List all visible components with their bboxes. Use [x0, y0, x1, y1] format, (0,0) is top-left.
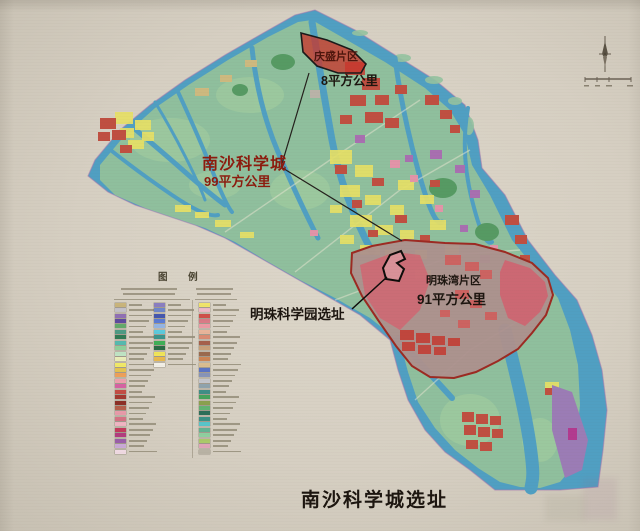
- legend-swatch: [199, 379, 210, 383]
- legend-swatch: [115, 422, 126, 426]
- legend-swatch: [199, 433, 210, 437]
- legend-swatch: [154, 357, 165, 361]
- legend-swatch: [115, 450, 126, 454]
- legend-label-bar: [129, 429, 153, 431]
- legend-label-bar: [213, 304, 226, 306]
- legend-label-bar: [213, 380, 232, 382]
- qingsheng-district-label: 庆盛片区: [314, 48, 358, 64]
- legend-label-bar: [129, 434, 150, 436]
- legend-label-bar: [213, 309, 239, 311]
- legend-swatch: [154, 341, 165, 345]
- legend-label-bar: [213, 364, 241, 366]
- legend-label-bar: [213, 429, 237, 431]
- legend-swatch: [199, 319, 210, 323]
- scale-bar: [583, 76, 633, 88]
- legend-swatch: [199, 341, 210, 345]
- legend-swatch: [199, 330, 210, 334]
- legend-divider: [114, 299, 190, 300]
- legend-swatch: [115, 303, 126, 307]
- legend-swatch: [115, 406, 126, 410]
- legend-swatch: [199, 314, 210, 318]
- legend-swatch: [154, 314, 165, 318]
- legend-label-bar: [129, 402, 152, 404]
- legend-label-bar: [213, 320, 233, 322]
- legend-swatch: [199, 303, 210, 307]
- mingzhu-bay-label: 明珠湾片区: [426, 272, 481, 288]
- legend-label-bar: [129, 336, 156, 338]
- legend-label-bar: [213, 336, 240, 338]
- legend-label-bar: [213, 369, 238, 371]
- legend-label-bar: [168, 315, 191, 317]
- legend-label-bar: [129, 309, 155, 311]
- legend-swatch: [199, 368, 210, 372]
- legend-label-bar: [168, 364, 196, 366]
- legend-label-bar: [129, 326, 146, 328]
- legend-swatch: [199, 384, 210, 388]
- legend-row: [199, 449, 241, 454]
- legend-label-bar: [129, 342, 153, 344]
- legend-label-bar: [213, 385, 229, 387]
- legend-label-bar: [129, 369, 154, 371]
- map-caption: 南沙科学城选址: [301, 485, 448, 512]
- legend-label-bar: [129, 380, 148, 382]
- legend-swatch: [115, 401, 126, 405]
- legend-label-bar: [129, 358, 144, 360]
- legend-label-bar: [168, 304, 181, 306]
- legend-label-bar: [168, 331, 182, 333]
- legend-label-bar: [168, 320, 188, 322]
- legend-swatch: [115, 390, 126, 394]
- magenta-patch: [568, 428, 577, 440]
- legend-label-bar: [213, 315, 236, 317]
- legend-swatch: [115, 346, 126, 350]
- legend-swatch: [115, 433, 126, 437]
- legend-swatch: [115, 417, 126, 421]
- legend-swatch: [154, 324, 165, 328]
- legend-swatch: [199, 428, 210, 432]
- legend-swatch: [115, 428, 126, 432]
- legend-swatch: [199, 411, 210, 415]
- legend-swatch: [115, 357, 126, 361]
- legend-swatch: [115, 395, 126, 399]
- legend-label-bar: [168, 353, 186, 355]
- legend-swatch: [199, 422, 210, 426]
- legend-label-bar: [129, 320, 149, 322]
- legend-label-bar: [213, 391, 226, 393]
- legend-label-bar: [129, 407, 149, 409]
- legend-label-bar: [129, 391, 142, 393]
- legend-swatch: [115, 314, 126, 318]
- legend-swatch: [199, 439, 210, 443]
- legend-column: [154, 302, 196, 367]
- page-bleed: [545, 495, 585, 521]
- legend-column: [115, 302, 157, 454]
- legend-label-bar: [213, 358, 228, 360]
- legend-row: [115, 449, 157, 454]
- legend-swatch: [199, 401, 210, 405]
- legend: 图 例: [96, 264, 241, 470]
- mingzhu-bay-area-label: 91平方公里: [417, 288, 486, 308]
- legend-label-bar: [213, 445, 228, 447]
- legend-label-bar: [213, 396, 239, 398]
- science-park-site-label: 明珠科学园选址: [250, 303, 345, 323]
- legend-label-bar: [168, 342, 192, 344]
- legend-label-bar: [129, 375, 151, 377]
- map-photo: 庆盛片区 8平方公里 南沙科学城 99平方公里 明珠湾片区 91平方公里 明珠科…: [0, 0, 640, 531]
- north-arrow-icon: [593, 33, 617, 75]
- legend-header-bar: [121, 288, 177, 290]
- legend-row: [154, 362, 196, 367]
- legend-header-bar: [123, 293, 175, 295]
- legend-label-bar: [213, 326, 230, 328]
- legend-column: [199, 302, 241, 454]
- qingsheng-area-label: 8平方公里: [321, 70, 378, 89]
- legend-swatch: [199, 450, 210, 454]
- legend-swatch: [115, 444, 126, 448]
- legend-label-bar: [129, 353, 147, 355]
- legend-swatch: [154, 308, 165, 312]
- legend-swatch: [115, 368, 126, 372]
- legend-divider: [195, 299, 237, 300]
- legend-swatch: [115, 330, 126, 334]
- page-bleed: [583, 478, 617, 520]
- legend-swatch: [115, 373, 126, 377]
- legend-label-bar: [213, 423, 240, 425]
- legend-label-bar: [129, 364, 157, 366]
- legend-label-bar: [213, 418, 227, 420]
- legend-label-bar: [213, 440, 231, 442]
- legend-swatch: [154, 363, 165, 367]
- legend-swatch: [154, 303, 165, 307]
- legend-swatch: [115, 308, 126, 312]
- legend-header-bar: [197, 293, 231, 295]
- legend-label-bar: [129, 451, 157, 453]
- legend-swatch: [115, 363, 126, 367]
- legend-swatch: [154, 319, 165, 323]
- legend-title: 图 例: [158, 269, 207, 283]
- legend-swatch: [115, 335, 126, 339]
- legend-label-bar: [213, 434, 234, 436]
- legend-swatch: [199, 357, 210, 361]
- legend-label-bar: [129, 445, 144, 447]
- legend-swatch: [199, 406, 210, 410]
- legend-swatch: [199, 390, 210, 394]
- legend-label-bar: [168, 347, 189, 349]
- legend-swatch: [154, 330, 165, 334]
- legend-label-bar: [129, 440, 147, 442]
- legend-label-bar: [129, 413, 146, 415]
- legend-label-bar: [168, 358, 183, 360]
- legend-label-bar: [129, 385, 145, 387]
- legend-swatch: [115, 352, 126, 356]
- legend-label-bar: [213, 331, 227, 333]
- science-city-area-label: 99平方公里: [204, 171, 270, 190]
- legend-swatch: [115, 379, 126, 383]
- legend-swatch: [199, 346, 210, 350]
- legend-swatch: [199, 335, 210, 339]
- legend-swatch: [199, 363, 210, 367]
- legend-swatch: [199, 373, 210, 377]
- legend-swatch: [154, 352, 165, 356]
- legend-label-bar: [168, 309, 194, 311]
- legend-label-bar: [129, 304, 142, 306]
- legend-label-bar: [129, 423, 156, 425]
- legend-swatch: [199, 417, 210, 421]
- legend-swatch: [154, 346, 165, 350]
- legend-label-bar: [213, 402, 236, 404]
- legend-label-bar: [129, 418, 143, 420]
- legend-label-bar: [129, 331, 143, 333]
- legend-label-bar: [213, 413, 230, 415]
- legend-swatch: [115, 319, 126, 323]
- legend-label-bar: [129, 396, 155, 398]
- legend-label-bar: [213, 375, 235, 377]
- legend-swatch: [115, 341, 126, 345]
- legend-label-bar: [213, 407, 233, 409]
- legend-label-bar: [213, 451, 241, 453]
- legend-swatch: [115, 439, 126, 443]
- legend-swatch: [115, 411, 126, 415]
- legend-label-bar: [213, 342, 237, 344]
- legend-label-bar: [129, 347, 150, 349]
- legend-swatch: [199, 352, 210, 356]
- legend-label-bar: [213, 347, 234, 349]
- legend-swatch: [154, 335, 165, 339]
- legend-swatch: [199, 308, 210, 312]
- legend-label-bar: [129, 315, 152, 317]
- legend-label-bar: [213, 353, 231, 355]
- legend-swatch: [115, 384, 126, 388]
- legend-swatch: [115, 324, 126, 328]
- legend-header-bar: [196, 288, 233, 290]
- legend-swatch: [199, 444, 210, 448]
- legend-swatch: [199, 324, 210, 328]
- legend-label-bar: [168, 336, 195, 338]
- legend-label-bar: [168, 326, 185, 328]
- legend-swatch: [199, 395, 210, 399]
